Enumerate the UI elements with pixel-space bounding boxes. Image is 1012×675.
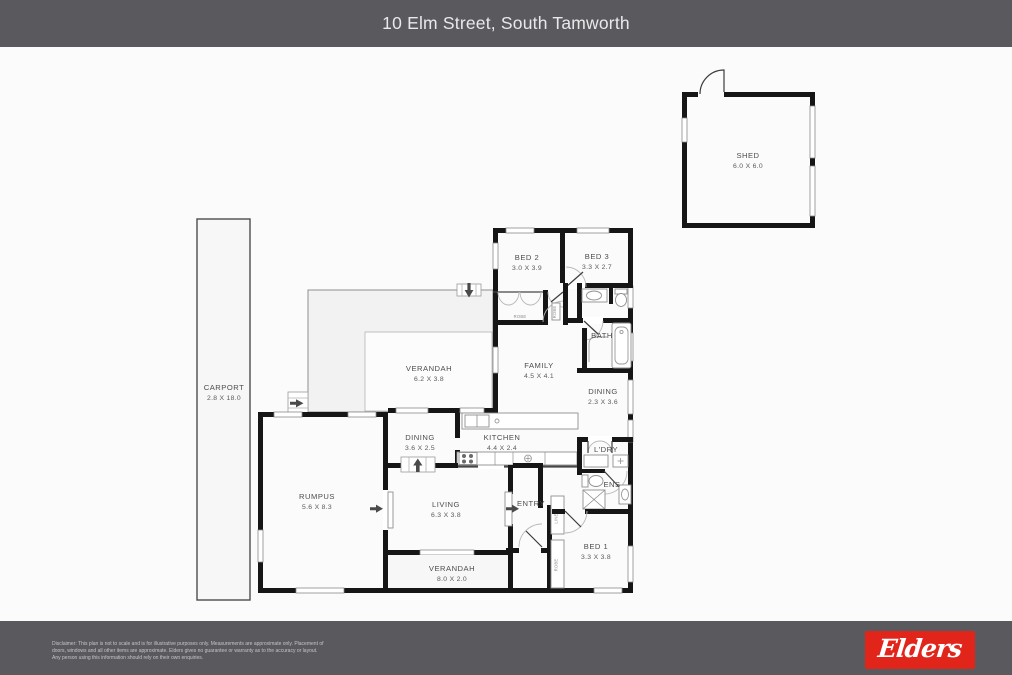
floorplan-drawing: SHED 6.0 X 6.0 CARPORT 2.8 X 18.0 VERAND…: [0, 0, 1012, 675]
robe-hall-label: ROBE: [552, 306, 557, 319]
bed2-dims: 3.0 X 3.9: [512, 265, 542, 272]
robe-bed2-label: ROBE: [514, 314, 527, 319]
cooktop-symbol-icon: [525, 455, 532, 462]
shower-icon: [589, 337, 607, 362]
shed-dims: 6.0 X 6.0: [733, 163, 763, 170]
bath-label: BATH: [591, 331, 613, 340]
verandah-top-label: VERANDAH: [406, 364, 452, 373]
rumpus-door-leaf: [388, 492, 393, 528]
dining-left-window: [396, 408, 428, 413]
verandah-bottom-label: VERANDAH: [429, 564, 475, 573]
bed1-door-icon: [565, 511, 581, 527]
kitchen-dims: 4.4 X 2.4: [487, 445, 517, 452]
family-dims: 4.5 X 4.1: [524, 373, 554, 380]
bed1-window-bottom: [594, 588, 622, 593]
dining-right-dims: 2.3 X 3.6: [588, 399, 618, 406]
bed3-window: [577, 228, 609, 233]
elders-logo-text: Elders: [877, 634, 964, 666]
kitchen-window: [460, 408, 484, 413]
rumpus-room: RUMPUS 5.6 X 8.3: [299, 492, 335, 511]
rumpus-arrow-icon: [370, 505, 383, 513]
disclaimer-line-2: doors, windows and all other items are a…: [52, 648, 324, 655]
ens-shower-icon: [583, 490, 605, 509]
toilet-icon: [616, 294, 627, 307]
disclaimer-line-3: Any person using this information should…: [52, 655, 324, 662]
living-dims: 6.3 X 3.8: [431, 512, 461, 519]
shed-window-right-1: [810, 106, 815, 158]
kitchen-area: KITCHEN 4.4 X 2.4: [455, 413, 578, 469]
shed-room: SHED 6.0 X 6.0: [682, 70, 815, 228]
bed1-dims: 3.3 X 3.8: [581, 554, 611, 561]
family-window-left: [493, 347, 498, 373]
carport-label: CARPORT: [204, 383, 245, 392]
dining-left-dims: 3.6 X 2.5: [405, 445, 435, 452]
footer-bar: Disclaimer: This plan is not to scale an…: [0, 621, 1012, 675]
ens-toilet-icon: [589, 476, 603, 487]
carport-dims: 2.8 X 18.0: [207, 395, 241, 402]
rumpus-window-top-2: [348, 412, 376, 417]
elders-logo: Elders: [865, 631, 975, 669]
shed-label: SHED: [736, 151, 759, 160]
shed-door-opening: [698, 91, 724, 98]
bed1-window-side: [628, 546, 633, 582]
ens-toilet-tank-icon: [582, 475, 588, 487]
shed-window-right-2: [810, 166, 815, 216]
verandah-top-area: VERANDAH 6.2 X 3.8: [288, 283, 493, 414]
bed2-door-icon: [551, 292, 563, 302]
living-window: [420, 550, 474, 555]
steps-dining: [401, 457, 435, 472]
living-label: LIVING: [432, 500, 460, 509]
verandah-top-dims: 6.2 X 3.8: [414, 376, 444, 383]
laundry-door-opening: [588, 436, 612, 443]
rumpus-door-opening: [383, 490, 388, 530]
laundry-label: L'DRY: [594, 445, 618, 454]
steps-side: [288, 392, 308, 414]
entry-area: ENTRY LINEN ROBE: [505, 463, 564, 588]
rumpus-window-bottom: [296, 588, 344, 593]
shed-window-left: [682, 118, 687, 142]
dining-left-label: DINING: [405, 433, 435, 442]
bed3-dims: 3.3 X 2.7: [582, 264, 612, 271]
bed2-label: BED 2: [515, 253, 539, 262]
floorplan-page: 10 Elm Street, South Tamworth SHED 6.0 X…: [0, 0, 1012, 675]
verandah-bottom-area: VERANDAH 8.0 X 2.0: [388, 555, 508, 588]
wc-window: [628, 286, 633, 308]
bed2-window: [506, 228, 534, 233]
ensuite-label: ENS: [603, 480, 620, 489]
ens-vanity-icon: [619, 485, 631, 504]
family-label: FAMILY: [524, 361, 553, 370]
bed3-label: BED 3: [585, 252, 609, 261]
dining-window-1: [628, 380, 633, 414]
disclaimer-text: Disclaimer: This plan is not to scale an…: [52, 641, 324, 662]
laundry-bench: [584, 455, 608, 467]
family-dining: FAMILY 4.5 X 4.1 DINING 2.3 X 3.6: [524, 361, 618, 406]
verandah-bottom-dims: 8.0 X 2.0: [437, 576, 467, 583]
rumpus-window-top-1: [274, 412, 302, 417]
disclaimer-line-1: Disclaimer: This plan is not to scale an…: [52, 641, 324, 648]
rumpus-dims: 5.6 X 8.3: [302, 504, 332, 511]
rumpus-label: RUMPUS: [299, 492, 335, 501]
entry-label: ENTRY: [517, 499, 545, 508]
bed2-window-left: [493, 243, 498, 269]
dining-right-label: DINING: [588, 387, 618, 396]
carport-area: CARPORT 2.8 X 18.0: [197, 219, 250, 600]
rumpus-window-left: [258, 530, 263, 562]
kitchen-label: KITCHEN: [484, 433, 521, 442]
front-door-icon: [526, 531, 542, 547]
stove-icon: [459, 453, 477, 465]
bed1-label: BED 1: [584, 542, 608, 551]
bath-room: BATH: [577, 323, 633, 373]
robe-bed1-label: ROBE: [554, 559, 559, 572]
shed-door-icon: [700, 70, 724, 94]
steps-top: [457, 283, 481, 298]
